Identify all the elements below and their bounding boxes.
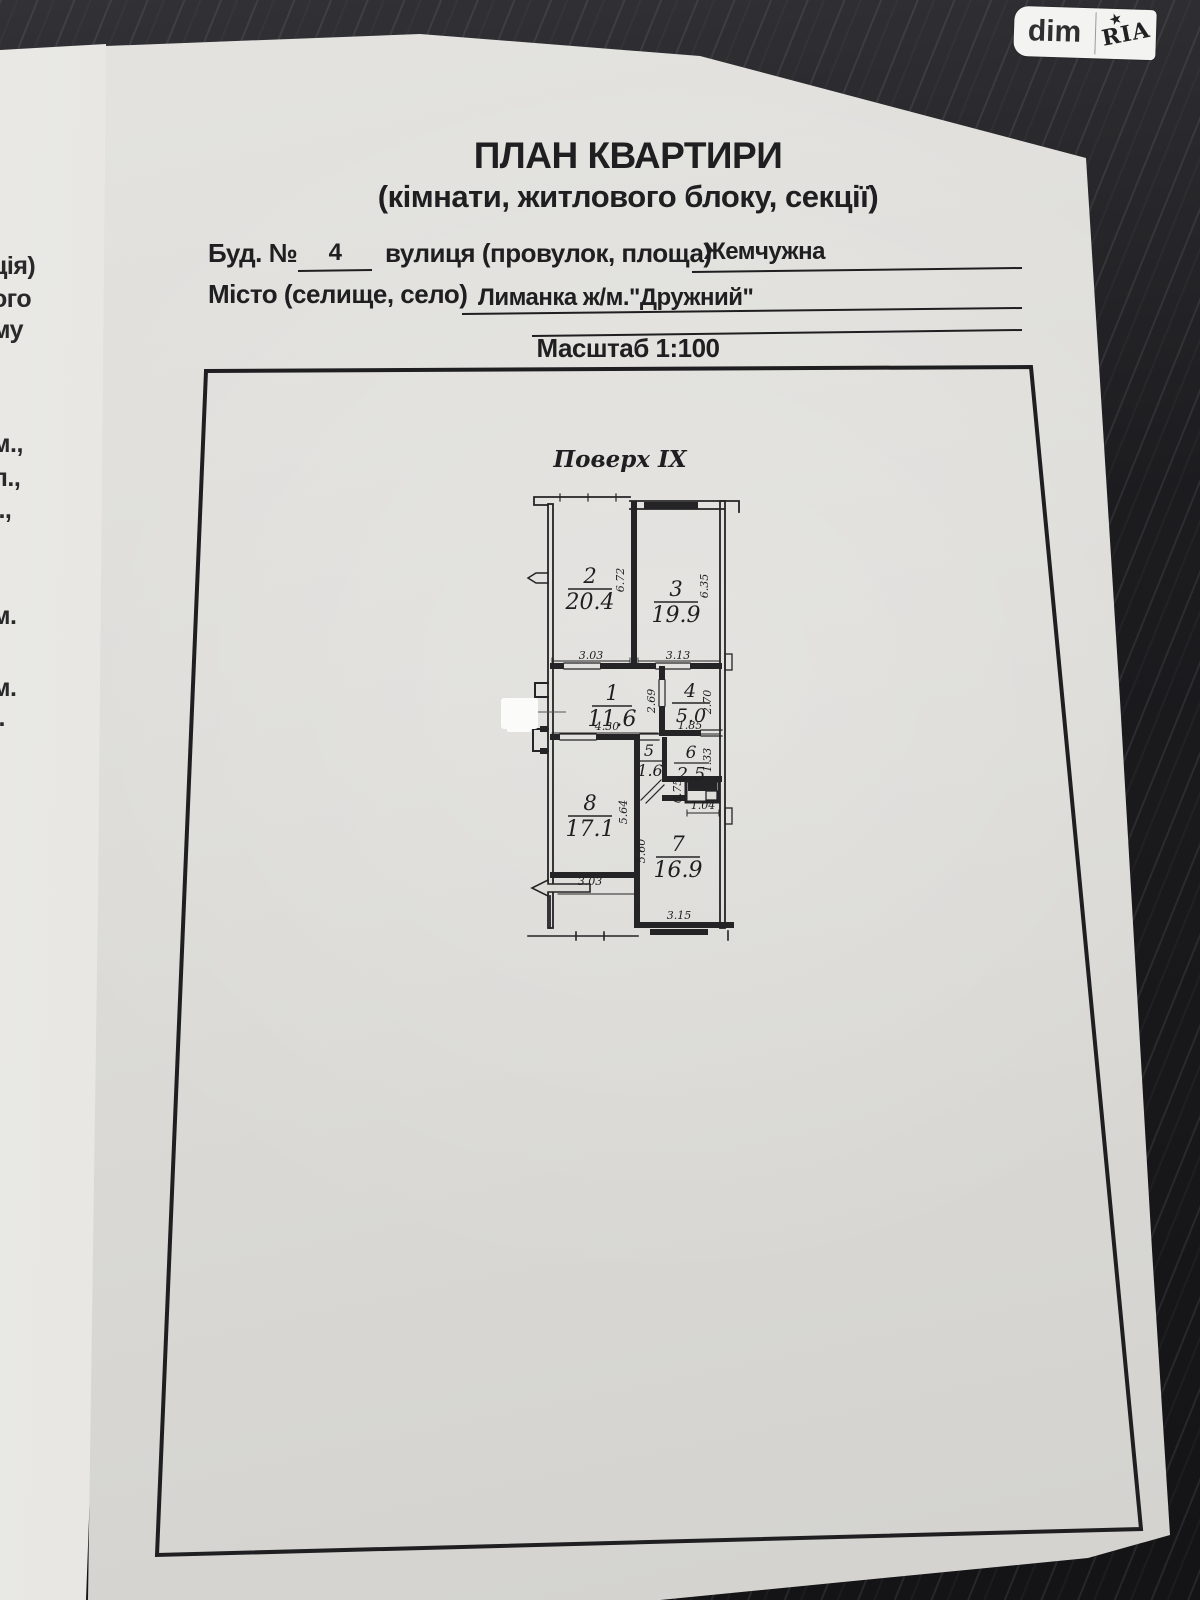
room-number: 8 — [583, 791, 596, 815]
room-area: 19.9 — [652, 603, 701, 628]
wall-1-4 — [659, 666, 665, 736]
wall-5-6 — [662, 737, 667, 779]
wall-under-2-3 — [550, 663, 722, 669]
room-area: 1.6 — [637, 761, 662, 780]
room-number: 3 — [669, 577, 682, 601]
dim-room7-width: 3.15 — [667, 909, 692, 922]
plan-frame — [157, 367, 1141, 1555]
dim-room1-height: 2.69 — [645, 689, 658, 715]
room-number: 6 — [686, 743, 697, 763]
room7-bottom-wall — [636, 922, 734, 940]
wall-2-3 — [631, 501, 637, 668]
watermark-ria-label: ★ RIA — [1094, 16, 1158, 53]
form-city-value: Лиманка ж/м."Дружний" — [478, 284, 753, 311]
page-title: ПЛАН КВАРТИРИ — [474, 135, 783, 176]
room-area: 17.1 — [566, 817, 615, 842]
room-area: 20.4 — [565, 590, 615, 615]
dim-shaft-height: 0.75 — [671, 779, 684, 804]
dim-room3-width: 3.13 — [666, 649, 691, 662]
left-outer-wall — [548, 504, 553, 928]
room3-window-band — [644, 502, 698, 509]
right-wall-notch — [725, 808, 732, 824]
dim-room8-height: 5.64 — [617, 800, 630, 825]
wall-under-1 — [550, 734, 659, 740]
document-content-overlay: ПЛАН КВАРТИРИ (кімнати, житлового блоку,… — [0, 0, 1200, 1600]
entry-door-mark — [533, 726, 548, 754]
form-city-label: Місто (селище, село) — [208, 279, 467, 309]
room-area: 16.9 — [654, 858, 703, 883]
watermark-ria-text: RIA — [1100, 17, 1153, 52]
room-number: 2 — [582, 564, 596, 588]
right-outer-wall — [720, 501, 725, 928]
scale-label: Масштаб 1:100 — [536, 333, 719, 363]
room-number: 7 — [671, 832, 685, 856]
left-arrow-mark — [528, 573, 548, 583]
room-number: 4 — [683, 680, 696, 702]
form-building-value: 4 — [329, 239, 343, 266]
watermark-badge: dim ★ RIA — [1013, 6, 1157, 60]
dim-room1-width: 4.30 — [594, 720, 620, 733]
building-underline — [298, 270, 372, 271]
room-number: 5 — [644, 741, 654, 760]
form-street-label: вулиця (провулок, площа) — [385, 238, 712, 268]
form-street-value: Жемчужна — [703, 238, 826, 265]
dim-room2-width: 3.03 — [579, 649, 604, 662]
dim-room4-height: 2.70 — [701, 690, 714, 716]
redaction-box — [501, 698, 566, 732]
door-hatch — [641, 780, 664, 803]
dim-room2-height: 6.72 — [614, 568, 627, 593]
balcony-line-bottom — [528, 932, 638, 940]
room-number: 1 — [605, 681, 618, 705]
left-bracket-mark — [535, 683, 548, 697]
form-building-label: Буд. № — [208, 238, 297, 268]
dim-room8-width: 3.03 — [578, 875, 603, 888]
watermark-dim-label: dim — [1013, 6, 1096, 59]
street-underline — [692, 268, 1022, 272]
page-subtitle: (кімнати, житлового блоку, секції) — [378, 179, 878, 214]
dim-room4-width: 1.85 — [678, 719, 703, 732]
floor-label: Поверх IX — [552, 446, 687, 473]
dim-room7-height: 5.60 — [635, 839, 648, 864]
dim-shaft-width: 1.04 — [691, 799, 716, 812]
dim-room3-height: 6.35 — [698, 574, 711, 599]
right-wall-notch — [725, 654, 732, 670]
dim-room6-height: 1.33 — [701, 748, 714, 773]
